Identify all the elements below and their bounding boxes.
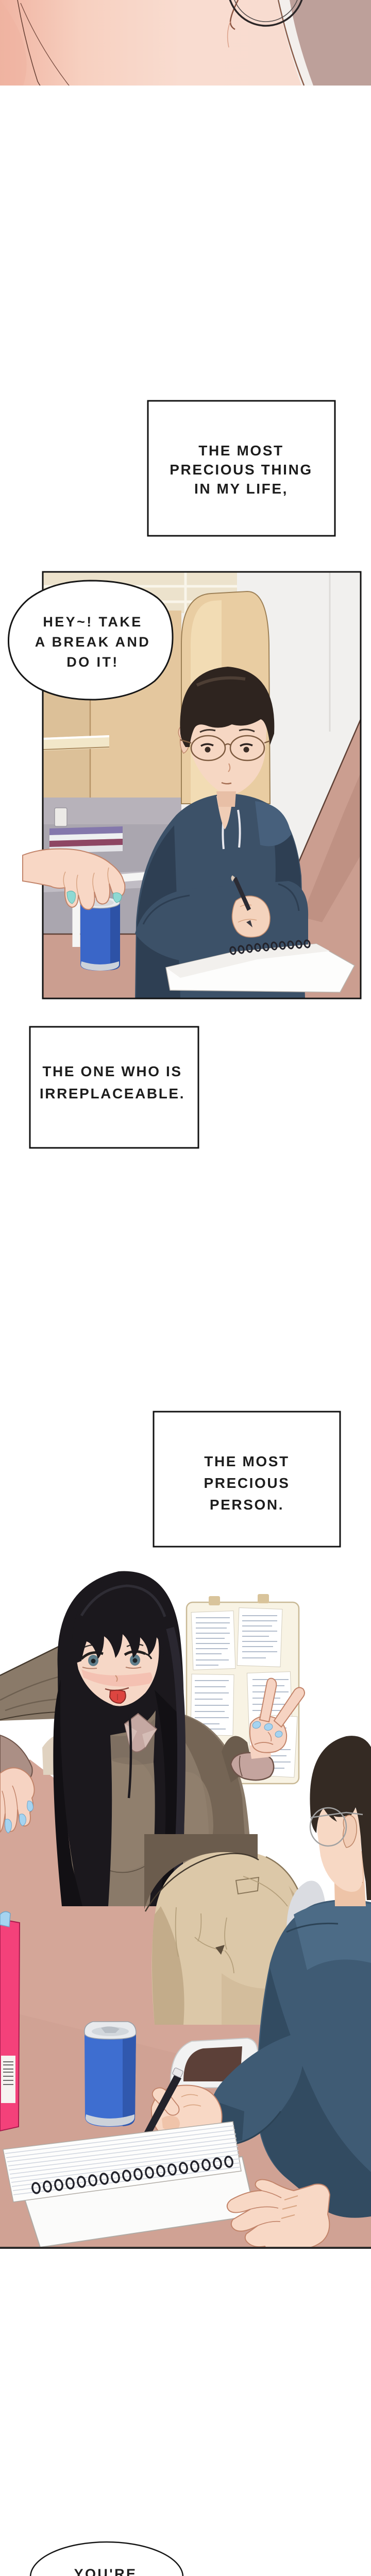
- svg-text:THE MOST: THE MOST: [198, 443, 283, 459]
- svg-text:DO IT!: DO IT!: [66, 654, 119, 670]
- svg-text:PRECIOUS THING: PRECIOUS THING: [170, 462, 313, 478]
- svg-text:PERSON.: PERSON.: [210, 1497, 284, 1513]
- svg-text:YOU'RE: YOU'RE: [74, 2566, 138, 2576]
- svg-text:PRECIOUS: PRECIOUS: [204, 1475, 290, 1491]
- svg-text:IRREPLACEABLE.: IRREPLACEABLE.: [40, 1086, 185, 1101]
- svg-text:IN MY LIFE,: IN MY LIFE,: [194, 481, 288, 497]
- svg-text:THE ONE WHO IS: THE ONE WHO IS: [42, 1063, 182, 1079]
- svg-text:A BREAK AND: A BREAK AND: [35, 634, 150, 650]
- svg-text:HEY~! TAKE: HEY~! TAKE: [43, 614, 142, 630]
- svg-text:THE MOST: THE MOST: [204, 1453, 289, 1469]
